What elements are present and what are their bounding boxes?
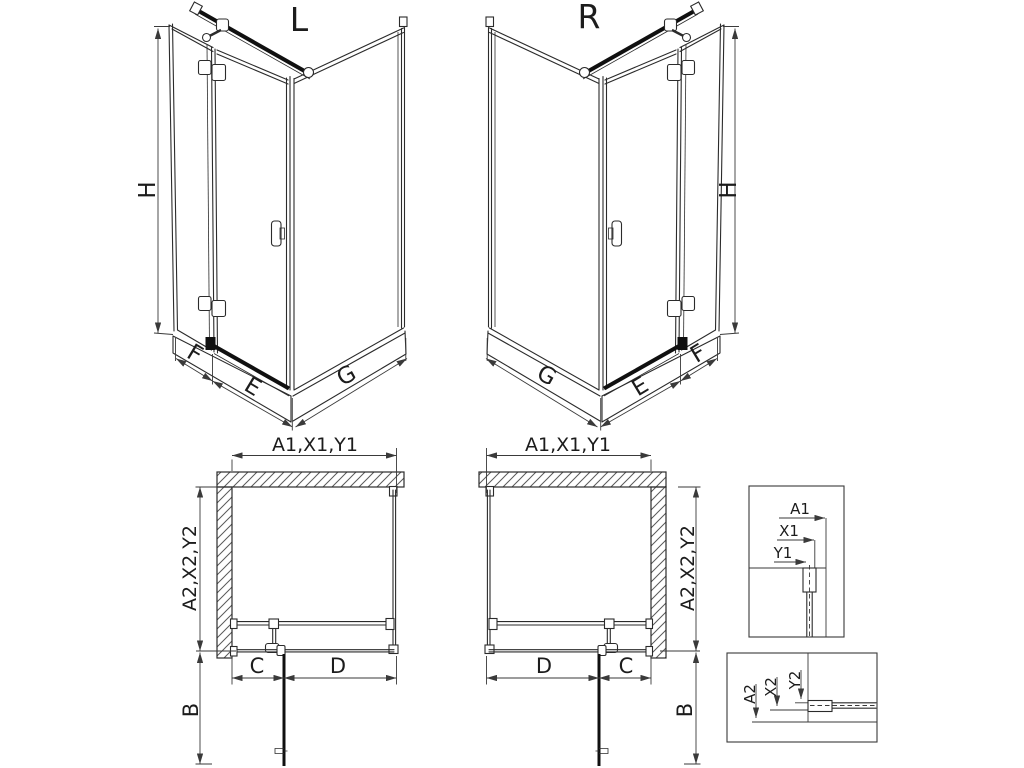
door-dim-label-left: E [240, 372, 266, 402]
iso-view-right: R H F E G [486, 0, 742, 431]
plan-depth-dim-label-right: A2,X2,Y2 [677, 525, 699, 611]
shower-enclosure-dimension-diagram: L H F E G R H F E G A1,X1,Y1 A2,X2,Y2 C … [0, 0, 1024, 768]
variant-title-left: L [290, 0, 309, 39]
plan-width-dim-label-left: A1,X1,Y1 [272, 434, 358, 456]
plan-b-dim-label-right: B [673, 703, 697, 717]
plan-view-left: A1,X1,Y1 A2,X2,Y2 C D B [179, 434, 404, 766]
plan-geometry-left [231, 487, 399, 767]
detail-width-section: A1 X1 Y1 [749, 486, 844, 637]
wall-hatch-side-right-plan [651, 487, 666, 658]
iso-view-left: L H F E G [135, 0, 407, 431]
detail-a1-label: A1 [790, 500, 810, 518]
wall-hatch-side-left-plan [217, 487, 232, 658]
plan-c-dim-label-right: C [619, 654, 634, 678]
wall-profile-section-2 [808, 701, 832, 712]
detail-x2-label: X2 [762, 677, 780, 697]
side-panel-dim-label-right: G [532, 360, 560, 391]
plan-d-dim-label-left: D [330, 654, 346, 678]
plan-geometry-right [485, 487, 653, 767]
height-dim-label-right: H [716, 181, 742, 198]
plan-depth-dim-label-left: A2,X2,Y2 [179, 525, 201, 611]
plan-b-dim-label-left: B [179, 703, 203, 717]
diagram-svg: L H F E G R H F E G A1,X1,Y1 A2,X2,Y2 C … [0, 0, 1024, 768]
plan-view-right: A1,X1,Y1 A2,X2,Y2 D C B [479, 434, 701, 766]
plan-c-dim-label-left: C [250, 654, 265, 678]
detail-a2-label: A2 [741, 684, 759, 704]
detail-depth-section: A2 X2 Y2 [727, 653, 877, 742]
side-panel-dim-label-left: G [333, 360, 361, 391]
wall-hatch-top-left-plan [217, 472, 404, 487]
plan-width-dim-label-right: A1,X1,Y1 [525, 434, 611, 456]
detail-x1-label: X1 [779, 522, 799, 540]
wall-hatch-top-right-plan [479, 472, 666, 487]
variant-title-right: R [578, 0, 601, 36]
height-dim-label-left: H [135, 181, 161, 198]
detail-y1-label: Y1 [773, 544, 793, 562]
door-dim-label-right: E [627, 372, 653, 402]
plan-d-dim-label-right: D [536, 654, 552, 678]
detail-y2-label: Y2 [786, 671, 804, 691]
